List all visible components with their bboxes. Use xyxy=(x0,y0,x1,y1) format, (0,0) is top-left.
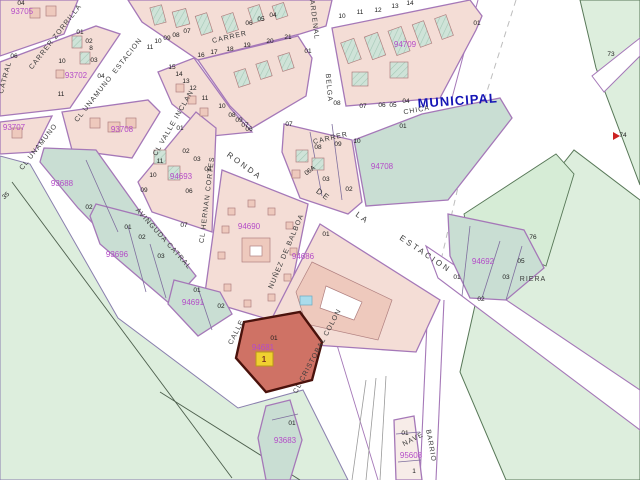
parcel-number: 02 xyxy=(85,38,93,45)
parcel-number: 10 xyxy=(353,138,361,145)
parcel-number: 13 xyxy=(391,3,399,10)
parcel-number: 06 xyxy=(378,102,386,109)
parcel-number: 20 xyxy=(266,38,274,45)
parcel-number: 17 xyxy=(210,49,218,56)
parcel-number: 08 xyxy=(314,144,322,151)
block-id-94693[interactable]: 94693 xyxy=(170,172,193,181)
parcel-number: 07 xyxy=(183,28,191,35)
parcel-number: 01 xyxy=(453,274,461,281)
block-id-93708[interactable]: 93708 xyxy=(111,125,134,134)
block-id-94681[interactable]: 94681 xyxy=(252,343,275,352)
street-label-barrio: BARRIO xyxy=(424,429,437,463)
parcel-number: 07 xyxy=(285,121,293,128)
parcel-number: 19 xyxy=(243,42,251,49)
parcel-number: 10 xyxy=(338,13,346,20)
parcel-number: 02 xyxy=(477,296,485,303)
street-label-riera: RIERA xyxy=(520,276,546,283)
parcel-94708-01[interactable] xyxy=(354,98,512,206)
parcel-number: 03 xyxy=(502,274,510,281)
parcel-number: 04 xyxy=(97,73,105,80)
parcel-number: 01 xyxy=(76,29,84,36)
block-id-94686[interactable]: 94686 xyxy=(292,252,315,261)
block-id-94708[interactable]: 94708 xyxy=(371,162,394,171)
parcel-number: 21 xyxy=(284,34,292,41)
parcel-number: 03 xyxy=(193,156,201,163)
parcel-number: 14 xyxy=(406,0,414,7)
parcel-number: 12 xyxy=(374,7,382,14)
parcel-number: 11 xyxy=(157,158,164,165)
block-id-93696[interactable]: 93696 xyxy=(106,250,129,259)
parcel-number: 8 xyxy=(89,45,93,52)
selected-parcel-94681[interactable] xyxy=(236,312,322,392)
parcel-number: 11 xyxy=(58,91,65,98)
parcel-number: 02 xyxy=(217,303,225,310)
parcel-number: 08 xyxy=(172,32,180,39)
street-label-la: LA xyxy=(354,210,371,226)
parcel-number: 04 xyxy=(204,166,212,173)
marker-number: 1 xyxy=(262,355,267,364)
parcel-number: 01 xyxy=(399,123,407,130)
cadastral-map-viewport[interactable]: 1 MUNICIPAL CARRER ZORRILLACATRALESTACIO… xyxy=(0,0,640,480)
parcel-number: 12 xyxy=(189,85,197,92)
parcel-number: 05 xyxy=(257,16,265,23)
parcel-number: 10 xyxy=(218,103,226,110)
parcel-number: 74 xyxy=(619,132,627,139)
parcel-number: 07 xyxy=(359,103,367,110)
parcel-number: 73 xyxy=(607,51,615,58)
parcel-number: 03 xyxy=(322,176,330,183)
parcel-number: 01 xyxy=(322,231,330,238)
parcel-number: 11 xyxy=(147,44,154,51)
parcel-number: 01 xyxy=(124,224,132,231)
parcel-number: 07 xyxy=(180,222,188,229)
parcel-number: 06 xyxy=(185,188,193,195)
block-id-94709[interactable]: 94709 xyxy=(394,40,417,49)
parcel-number: 15 xyxy=(168,64,176,71)
parcel-number: 16 xyxy=(197,52,205,59)
cadastral-map[interactable]: 1 MUNICIPAL CARRER ZORRILLACATRALESTACIO… xyxy=(0,0,640,480)
street-label-estacion: ESTACION xyxy=(398,233,453,274)
parcel-number: 05 xyxy=(389,102,397,109)
parcel-number: 01 xyxy=(304,48,312,55)
street-label-belga: BELGA xyxy=(324,73,333,102)
street-label-estacion: ESTACION xyxy=(112,37,144,75)
parcel-number: 09 xyxy=(163,35,171,42)
block-id-95608[interactable]: 95608 xyxy=(400,451,423,460)
block-id-94692[interactable]: 94692 xyxy=(472,257,495,266)
block-95608[interactable] xyxy=(394,416,422,480)
parcel-number: 11 xyxy=(357,9,364,16)
parcel-number: 06 xyxy=(10,53,18,60)
block-id-93683[interactable]: 93683 xyxy=(274,436,297,445)
parcel-number: 14 xyxy=(175,71,183,78)
parcel-number: 06 xyxy=(245,20,253,27)
parcel-number: 01 xyxy=(473,20,481,27)
path-line-2 xyxy=(366,378,376,480)
parcel-number: 01 xyxy=(288,420,296,427)
parcel-number: 10 xyxy=(149,172,157,179)
parcel-number: 04 xyxy=(269,12,277,19)
parcel-number: 10 xyxy=(154,38,162,45)
parcel-number: 02 xyxy=(85,204,93,211)
block-id-94690[interactable]: 94690 xyxy=(238,222,261,231)
road-barrio-edge-right xyxy=(436,300,444,480)
block-id-93707[interactable]: 93707 xyxy=(3,123,26,132)
parcel-number: 06 xyxy=(245,126,253,133)
parcel-number: 04 xyxy=(402,98,410,105)
parcel-number: 01 xyxy=(176,125,184,132)
parcel-number: 08 xyxy=(333,100,341,107)
parcel-number: 02 xyxy=(182,148,190,155)
parcel-number: 13 xyxy=(182,78,190,85)
parcel-number: 76 xyxy=(529,234,537,241)
parcel-number: 18 xyxy=(226,46,234,53)
parcel-number: 02 xyxy=(345,186,353,193)
parcel-number: 1 xyxy=(412,468,416,475)
path-line-3 xyxy=(380,376,386,480)
parcel-number: 04 xyxy=(17,0,25,7)
parcel-number: 02 xyxy=(138,234,146,241)
parcel-number: 03 xyxy=(90,57,98,64)
path-line-1 xyxy=(352,380,366,480)
block-id-93705[interactable]: 93705 xyxy=(11,7,34,16)
parcel-number: 01 xyxy=(193,287,201,294)
block-id-94691[interactable]: 94691 xyxy=(182,298,205,307)
pool xyxy=(300,296,312,305)
selected-parcel-marker[interactable]: 1 xyxy=(256,352,273,366)
parcel-number: 03 xyxy=(157,253,165,260)
block-id-93702[interactable]: 93702 xyxy=(65,71,88,80)
parcel-number: 10 xyxy=(58,58,66,65)
parcel-number: 11 xyxy=(202,95,209,102)
block-id-93688[interactable]: 93688 xyxy=(51,179,74,188)
parcel-number: 09 xyxy=(334,141,342,148)
parcel-number: 01 xyxy=(401,430,409,437)
parcel-number: 09 xyxy=(140,187,148,194)
parcel-number: 01 xyxy=(270,335,278,342)
parcel-number: 05 xyxy=(517,258,525,265)
